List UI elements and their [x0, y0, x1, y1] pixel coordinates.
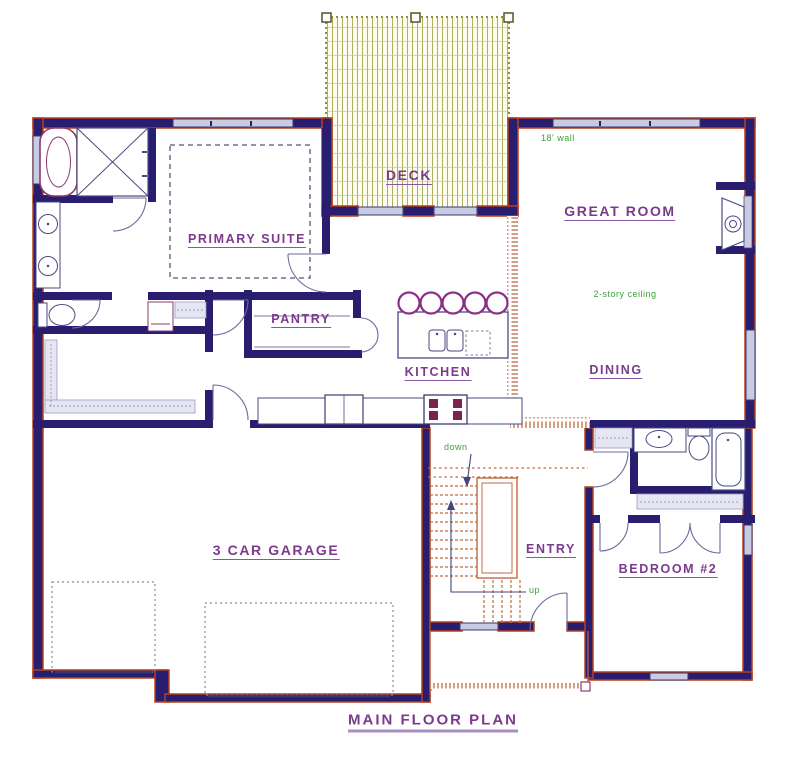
stair-treads-down [430, 486, 477, 576]
wall-deck-right [508, 118, 518, 216]
door-primary-bath [113, 198, 146, 231]
door-closet-left [660, 523, 690, 553]
label-garage: 3 CAR GARAGE [213, 542, 340, 560]
label-bedroom2: BEDROOM #2 [619, 562, 718, 578]
window-primary-suite [173, 119, 293, 127]
label-primary-suite: PRIMARY SUITE [188, 232, 306, 248]
wall-closet-east-2 [205, 390, 213, 422]
dishwasher [466, 331, 490, 355]
bar-stools [399, 293, 508, 314]
fireplace [722, 196, 752, 250]
wall-pantry-bottom [244, 350, 362, 358]
label-kitchen: KITCHEN [405, 365, 472, 381]
door-front [530, 593, 567, 630]
label-dining: DINING [589, 363, 642, 379]
up-arrow-head [447, 500, 455, 510]
note-stair-down: down [444, 442, 468, 452]
wall-suite-south-2 [148, 292, 252, 300]
counter-right [467, 398, 522, 424]
wall-suite-south-1 [33, 292, 112, 300]
garage-door-outline-double [205, 603, 393, 695]
window-great-room [553, 119, 700, 127]
wall-bedroom2-left-upper [585, 428, 593, 450]
wall-garage-top-1 [33, 420, 213, 428]
floor-plan-drawing: DECK GREAT ROOM PRIMARY SUITE PANTRY KIT… [0, 0, 785, 768]
stair-treads-up [484, 580, 520, 624]
stairs [428, 454, 588, 624]
bath2-fixtures [595, 428, 745, 509]
wall-closet-top [33, 326, 213, 334]
wall-suite-east [322, 128, 330, 254]
door-water-closet [72, 300, 100, 328]
tray-ceiling-primary [170, 145, 310, 278]
wall-entry-front-2 [498, 622, 534, 631]
toilet-tank-bath2 [688, 428, 710, 436]
sink-bath2 [646, 431, 672, 448]
wall-bedroom2-top-3 [720, 515, 755, 523]
porch-edge-hatch [432, 683, 586, 691]
garage-door-outline-single [52, 582, 155, 672]
wall-deck-bottom-3 [477, 206, 518, 216]
wall-fireplace-top [716, 182, 755, 190]
wall-bedroom2-top-1 [588, 515, 600, 523]
window-entry [460, 623, 498, 630]
porch [430, 631, 590, 691]
window-bedroom2-bottom [650, 673, 688, 680]
porch-outline [430, 631, 588, 690]
garage-doors [52, 582, 393, 696]
door-primary-suite [288, 254, 326, 292]
closet-rods [49, 344, 191, 406]
wall-pantry-right-2 [353, 352, 361, 358]
wall-deck-bottom-2 [403, 206, 434, 216]
wall-bath-bedroom [148, 128, 156, 202]
toilet-tank-primary [38, 303, 47, 327]
wall-entry-front-1 [430, 622, 462, 631]
stair-rail-box [477, 478, 517, 578]
label-entry: ENTRY [526, 542, 576, 558]
fireplace-back [744, 196, 752, 248]
label-deck: DECK [386, 167, 432, 185]
note-wall-height: 18' wall [541, 133, 575, 143]
wall-pantry-right-1 [353, 290, 361, 318]
door-bath-hall [593, 452, 628, 487]
toilet-bowl-primary [49, 305, 75, 326]
label-great-room: GREAT ROOM [564, 203, 675, 221]
closet-shelf-bottom [45, 400, 195, 413]
wall-bedroom2-top-2 [628, 515, 660, 523]
mudroom-bench [148, 302, 173, 331]
stair-rails [507, 216, 590, 428]
door-hall [213, 300, 248, 335]
sliding-door-deck-left [358, 207, 403, 215]
porch-post [581, 682, 590, 691]
door-pantry-double [361, 318, 378, 352]
wall-entry-left [422, 428, 430, 702]
tub-primary-basin [47, 137, 71, 187]
window-dining [746, 330, 755, 400]
door-bedroom2 [600, 523, 628, 551]
sliding-door-deck-right [434, 207, 477, 215]
wall-dining-bath [588, 420, 755, 428]
floor-plan-canvas [0, 0, 785, 768]
window-bedroom2-right [744, 525, 752, 555]
note-stair-up: up [529, 585, 540, 595]
closet-shelf-left [45, 340, 57, 410]
door-garage-entry [213, 385, 248, 420]
toilet-bowl-bath2 [689, 436, 709, 460]
note-ceiling: 2-story ceiling [593, 289, 656, 299]
door-closet-right [690, 523, 720, 553]
label-pantry: PANTRY [271, 312, 331, 328]
wall-pantry-top [252, 292, 360, 300]
down-arrow-head [463, 477, 471, 487]
plan-title: MAIN FLOOR PLAN [348, 712, 518, 733]
wall-closet-east-1 [205, 290, 213, 352]
